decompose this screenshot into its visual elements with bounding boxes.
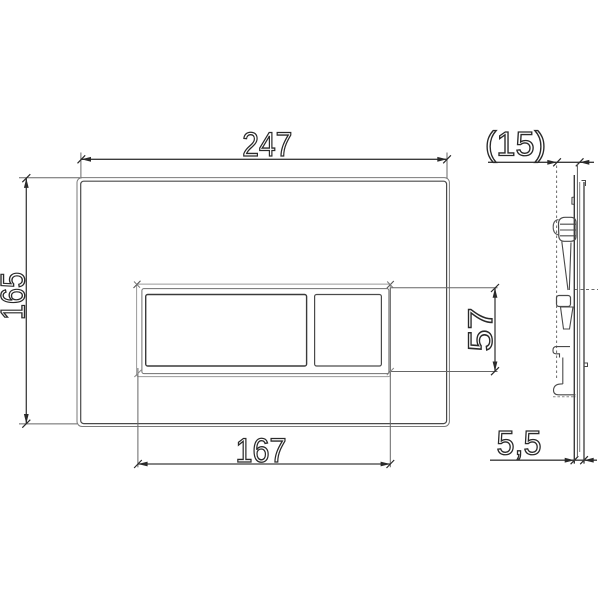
svg-text:5,5: 5,5 <box>497 425 542 463</box>
svg-text:57: 57 <box>462 308 500 352</box>
svg-text:(15): (15) <box>485 126 546 164</box>
svg-text:247: 247 <box>242 126 292 164</box>
svg-text:167: 167 <box>236 432 287 470</box>
svg-text:165: 165 <box>0 272 33 320</box>
